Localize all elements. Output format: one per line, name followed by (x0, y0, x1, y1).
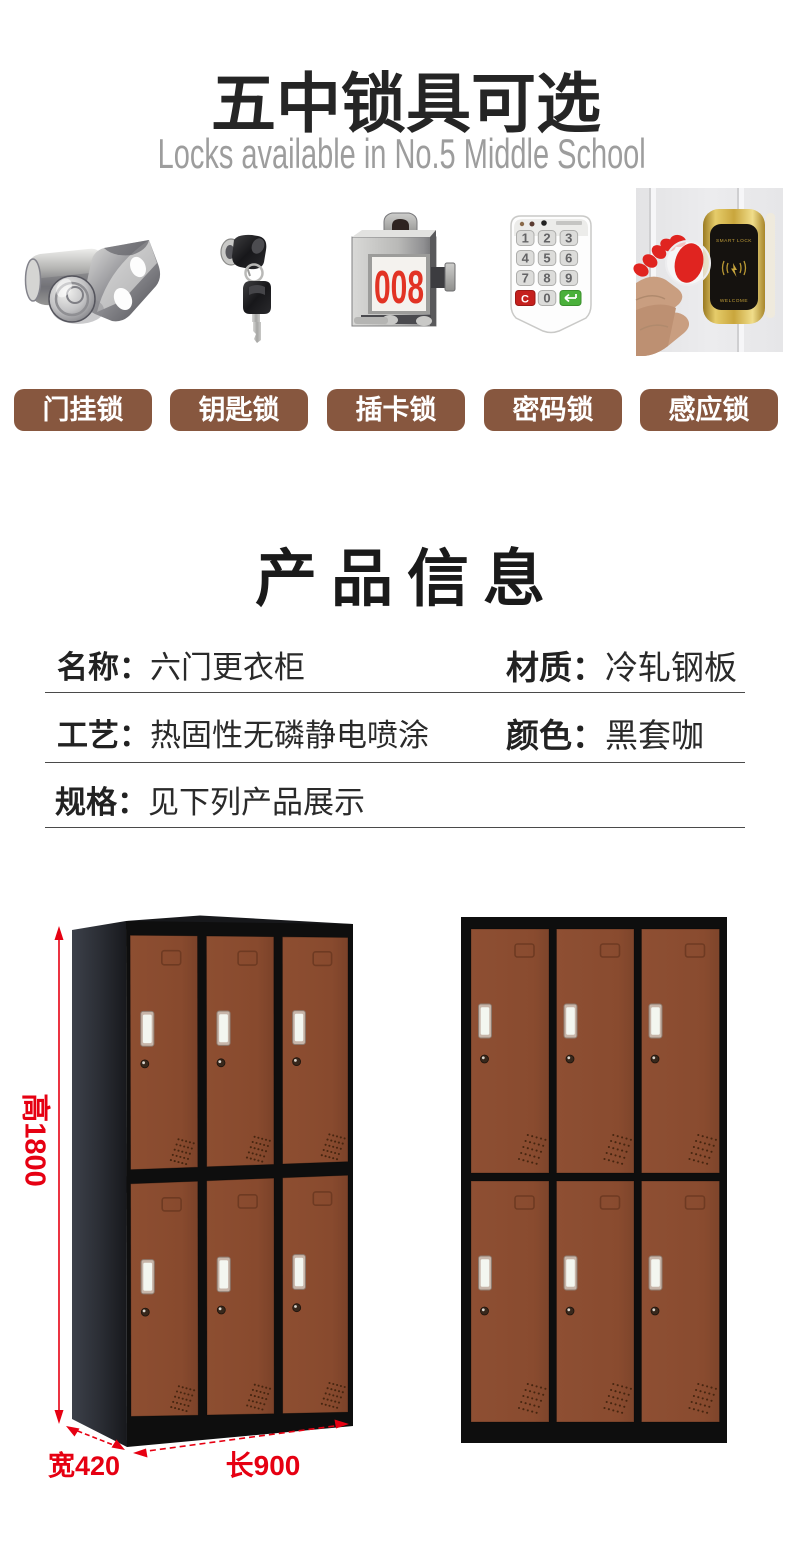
svg-text:3: 3 (565, 231, 572, 246)
svg-text:9: 9 (565, 271, 572, 286)
svg-text:4: 4 (522, 251, 530, 266)
svg-text:2: 2 (543, 231, 550, 246)
svg-text:SMART LOCK: SMART LOCK (716, 238, 752, 244)
svg-text:0: 0 (543, 291, 550, 306)
svg-text:008: 008 (374, 261, 424, 313)
svg-text:长900: 长900 (226, 1450, 301, 1481)
svg-text:1: 1 (522, 231, 529, 246)
svg-text:宽420: 宽420 (48, 1450, 120, 1481)
svg-text:5: 5 (543, 251, 550, 266)
svg-text:高1800: 高1800 (19, 1093, 52, 1187)
svg-text:WELCOME: WELCOME (720, 298, 748, 304)
svg-text:8: 8 (543, 271, 550, 286)
svg-text:7: 7 (522, 271, 529, 286)
svg-text:C: C (521, 294, 529, 306)
svg-text:6: 6 (565, 251, 572, 266)
